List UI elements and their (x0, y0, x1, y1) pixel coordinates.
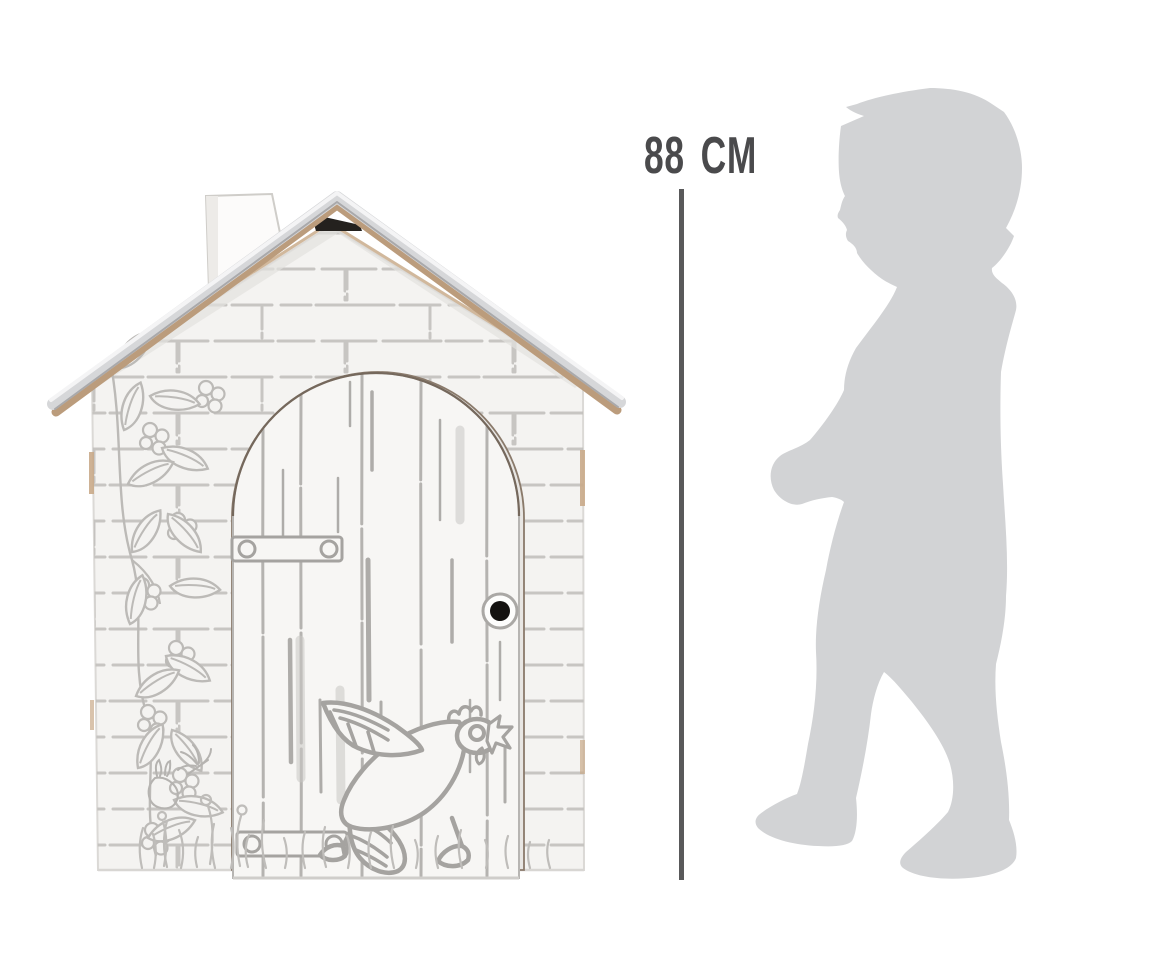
measurement-line (679, 189, 684, 880)
child-silhouette (756, 88, 1022, 879)
page: 88 cm (0, 0, 1167, 965)
size-comparison-figure (0, 0, 1167, 965)
door-hinge-top (232, 537, 342, 561)
door-knob (483, 594, 517, 628)
playhouse-graphic (51, 193, 622, 878)
measurement-label: 88 cm (644, 130, 757, 182)
